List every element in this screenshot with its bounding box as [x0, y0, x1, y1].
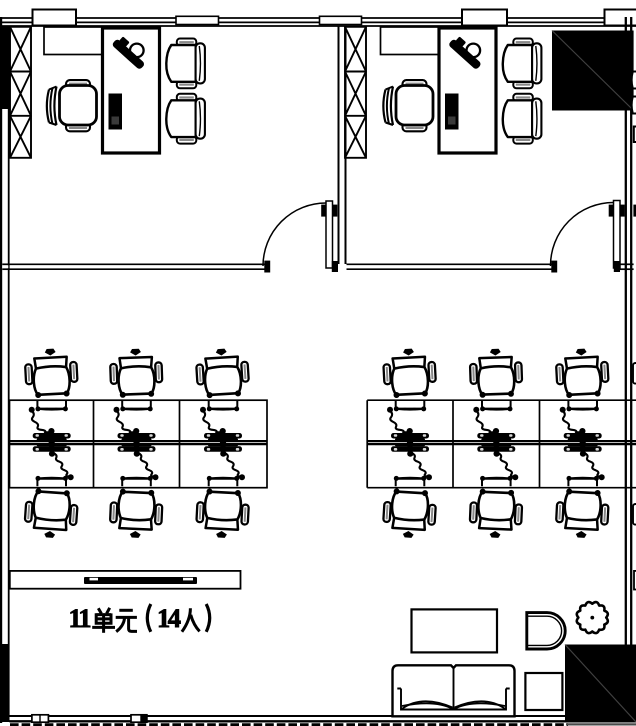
svg-text:11: 11 — [69, 603, 92, 633]
svg-text:14: 14 — [157, 603, 181, 633]
